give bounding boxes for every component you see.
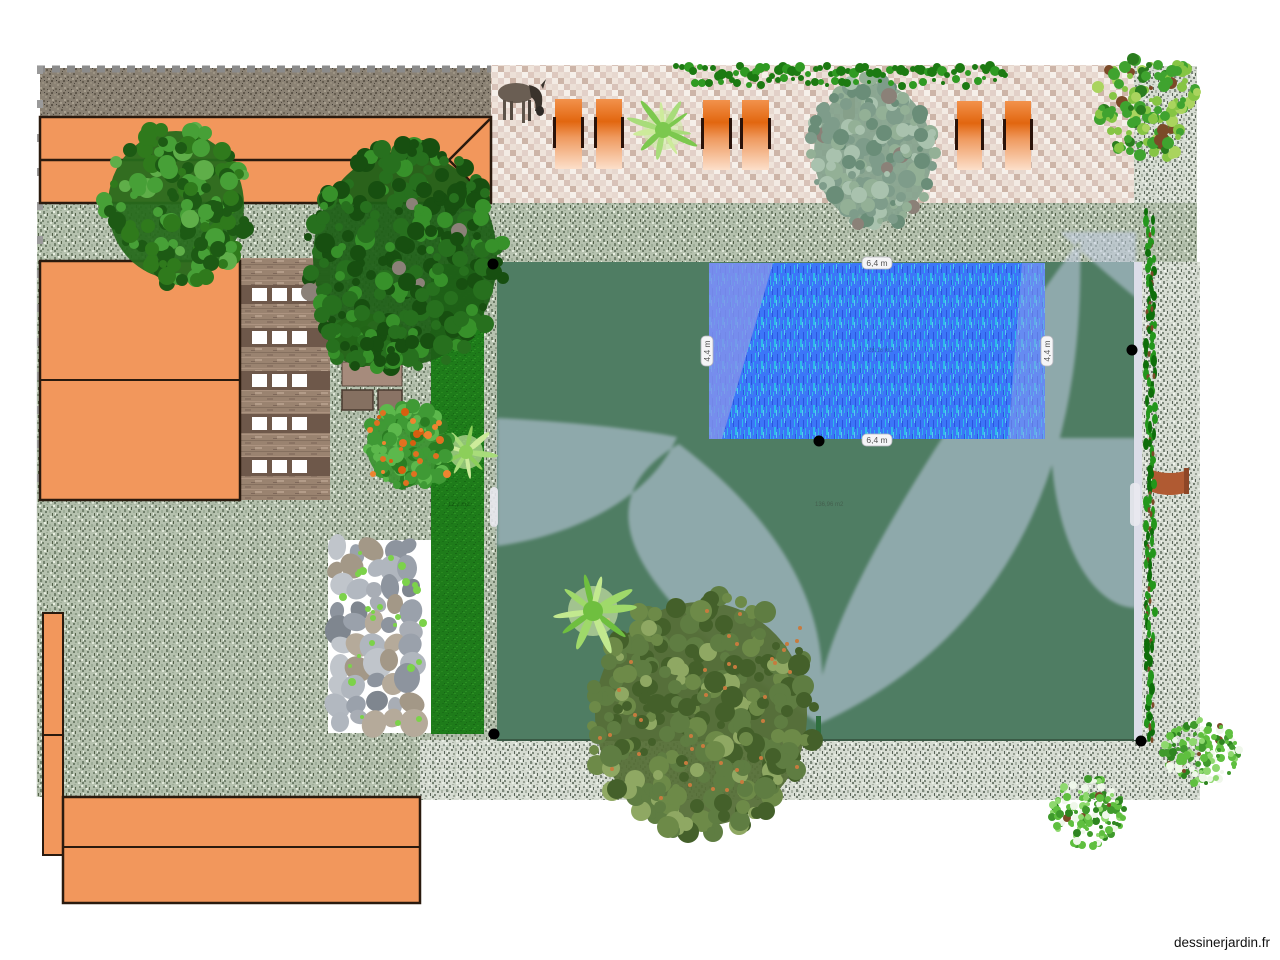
svg-text:136,96 m2: 136,96 m2 bbox=[815, 502, 844, 508]
svg-text:12,2 m2: 12,2 m2 bbox=[448, 502, 470, 508]
svg-text:4,4 m: 4,4 m bbox=[1042, 340, 1052, 361]
svg-text:4,4 m: 4,4 m bbox=[702, 340, 712, 361]
svg-text:6,4 m: 6,4 m bbox=[866, 258, 887, 268]
svg-text:6,4 m: 6,4 m bbox=[866, 435, 887, 445]
svg-text:28,16 m2: 28,16 m2 bbox=[868, 348, 894, 354]
svg-text:dessinerjardin.fr: dessinerjardin.fr bbox=[1174, 935, 1271, 950]
